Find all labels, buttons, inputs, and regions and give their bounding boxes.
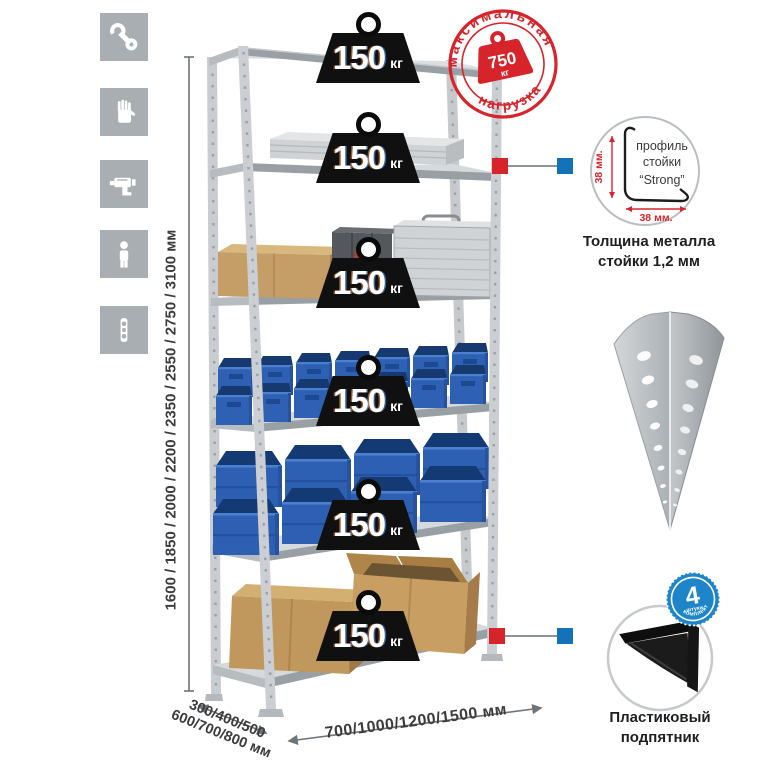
profile-dim-vertical: 38 мм. [593, 150, 605, 183]
foot-caption-line1: Пластиковый [582, 708, 738, 728]
tile-person [100, 230, 148, 278]
weight-ring [356, 590, 381, 615]
product-illustration: 150кг 150кг 150кг 150кг 150кг 150кг макс… [0, 0, 765, 765]
load-value: 150 [333, 617, 385, 655]
post-profile-detail: 38 мм. 38 мм. профиль стойки “Strong” [588, 114, 704, 230]
load-value: 150 [333, 39, 385, 77]
load-value: 150 [333, 382, 385, 420]
corner-post-image [592, 298, 752, 540]
foot-caption: Пластиковый подпятник [582, 708, 738, 748]
load-unit: кг [390, 398, 403, 414]
profile-caption-line1: Толщина металла [568, 232, 730, 252]
tile-drill [100, 160, 148, 208]
profile-dim-horizontal: 38 мм. [639, 212, 672, 224]
level-icon [107, 313, 141, 347]
load-unit: кг [390, 522, 403, 538]
tile-level [100, 306, 148, 354]
tile-gloves [100, 88, 148, 136]
profile-label-2: стойки [643, 155, 681, 169]
drill-icon [107, 167, 141, 201]
shelf-load-badge: 150кг [316, 237, 420, 308]
tile-assembly [100, 13, 148, 61]
weight-ring [356, 355, 381, 380]
max-load-stamp: максимальная нагрузка 750 кг [440, 4, 566, 126]
profile-label-1: профиль [636, 139, 688, 153]
shelf-load-badge: 150кг [316, 112, 420, 183]
weight-ring [356, 237, 381, 262]
profile-callout-connector [492, 158, 573, 174]
shelf-load-badge: 150кг [316, 590, 420, 661]
foot-callout-connector [489, 628, 573, 644]
load-unit: кг [390, 280, 403, 296]
height-dimension-label: 1600 / 1850 / 2000 / 2200 / 2350 / 2550 … [163, 230, 180, 611]
wrench-icon [107, 20, 141, 54]
foot-caption-line2: подпятник [582, 728, 738, 748]
profile-caption: Толщина металла стойки 1,2 мм [568, 232, 730, 272]
profile-caption-line2: стойки 1,2 мм [568, 252, 730, 272]
load-unit: кг [390, 55, 403, 71]
weight-ring [356, 12, 381, 37]
load-unit: кг [390, 633, 403, 649]
gloves-icon [107, 95, 141, 129]
person-icon [107, 237, 141, 271]
included-count-badge: 4 штуки в комплекте [664, 570, 722, 628]
shelf-load-badge: 150кг [316, 479, 420, 550]
height-dimension-line [184, 57, 194, 691]
load-value: 150 [333, 506, 385, 544]
weight-ring [356, 112, 381, 137]
load-value: 150 [333, 139, 385, 177]
load-unit: кг [390, 155, 403, 171]
load-value: 150 [333, 264, 385, 302]
weight-ring [356, 479, 381, 504]
shelf-load-badge: 150кг [316, 355, 420, 426]
shelf-load-badge: 150кг [316, 12, 420, 83]
profile-label-3: “Strong” [639, 173, 684, 187]
